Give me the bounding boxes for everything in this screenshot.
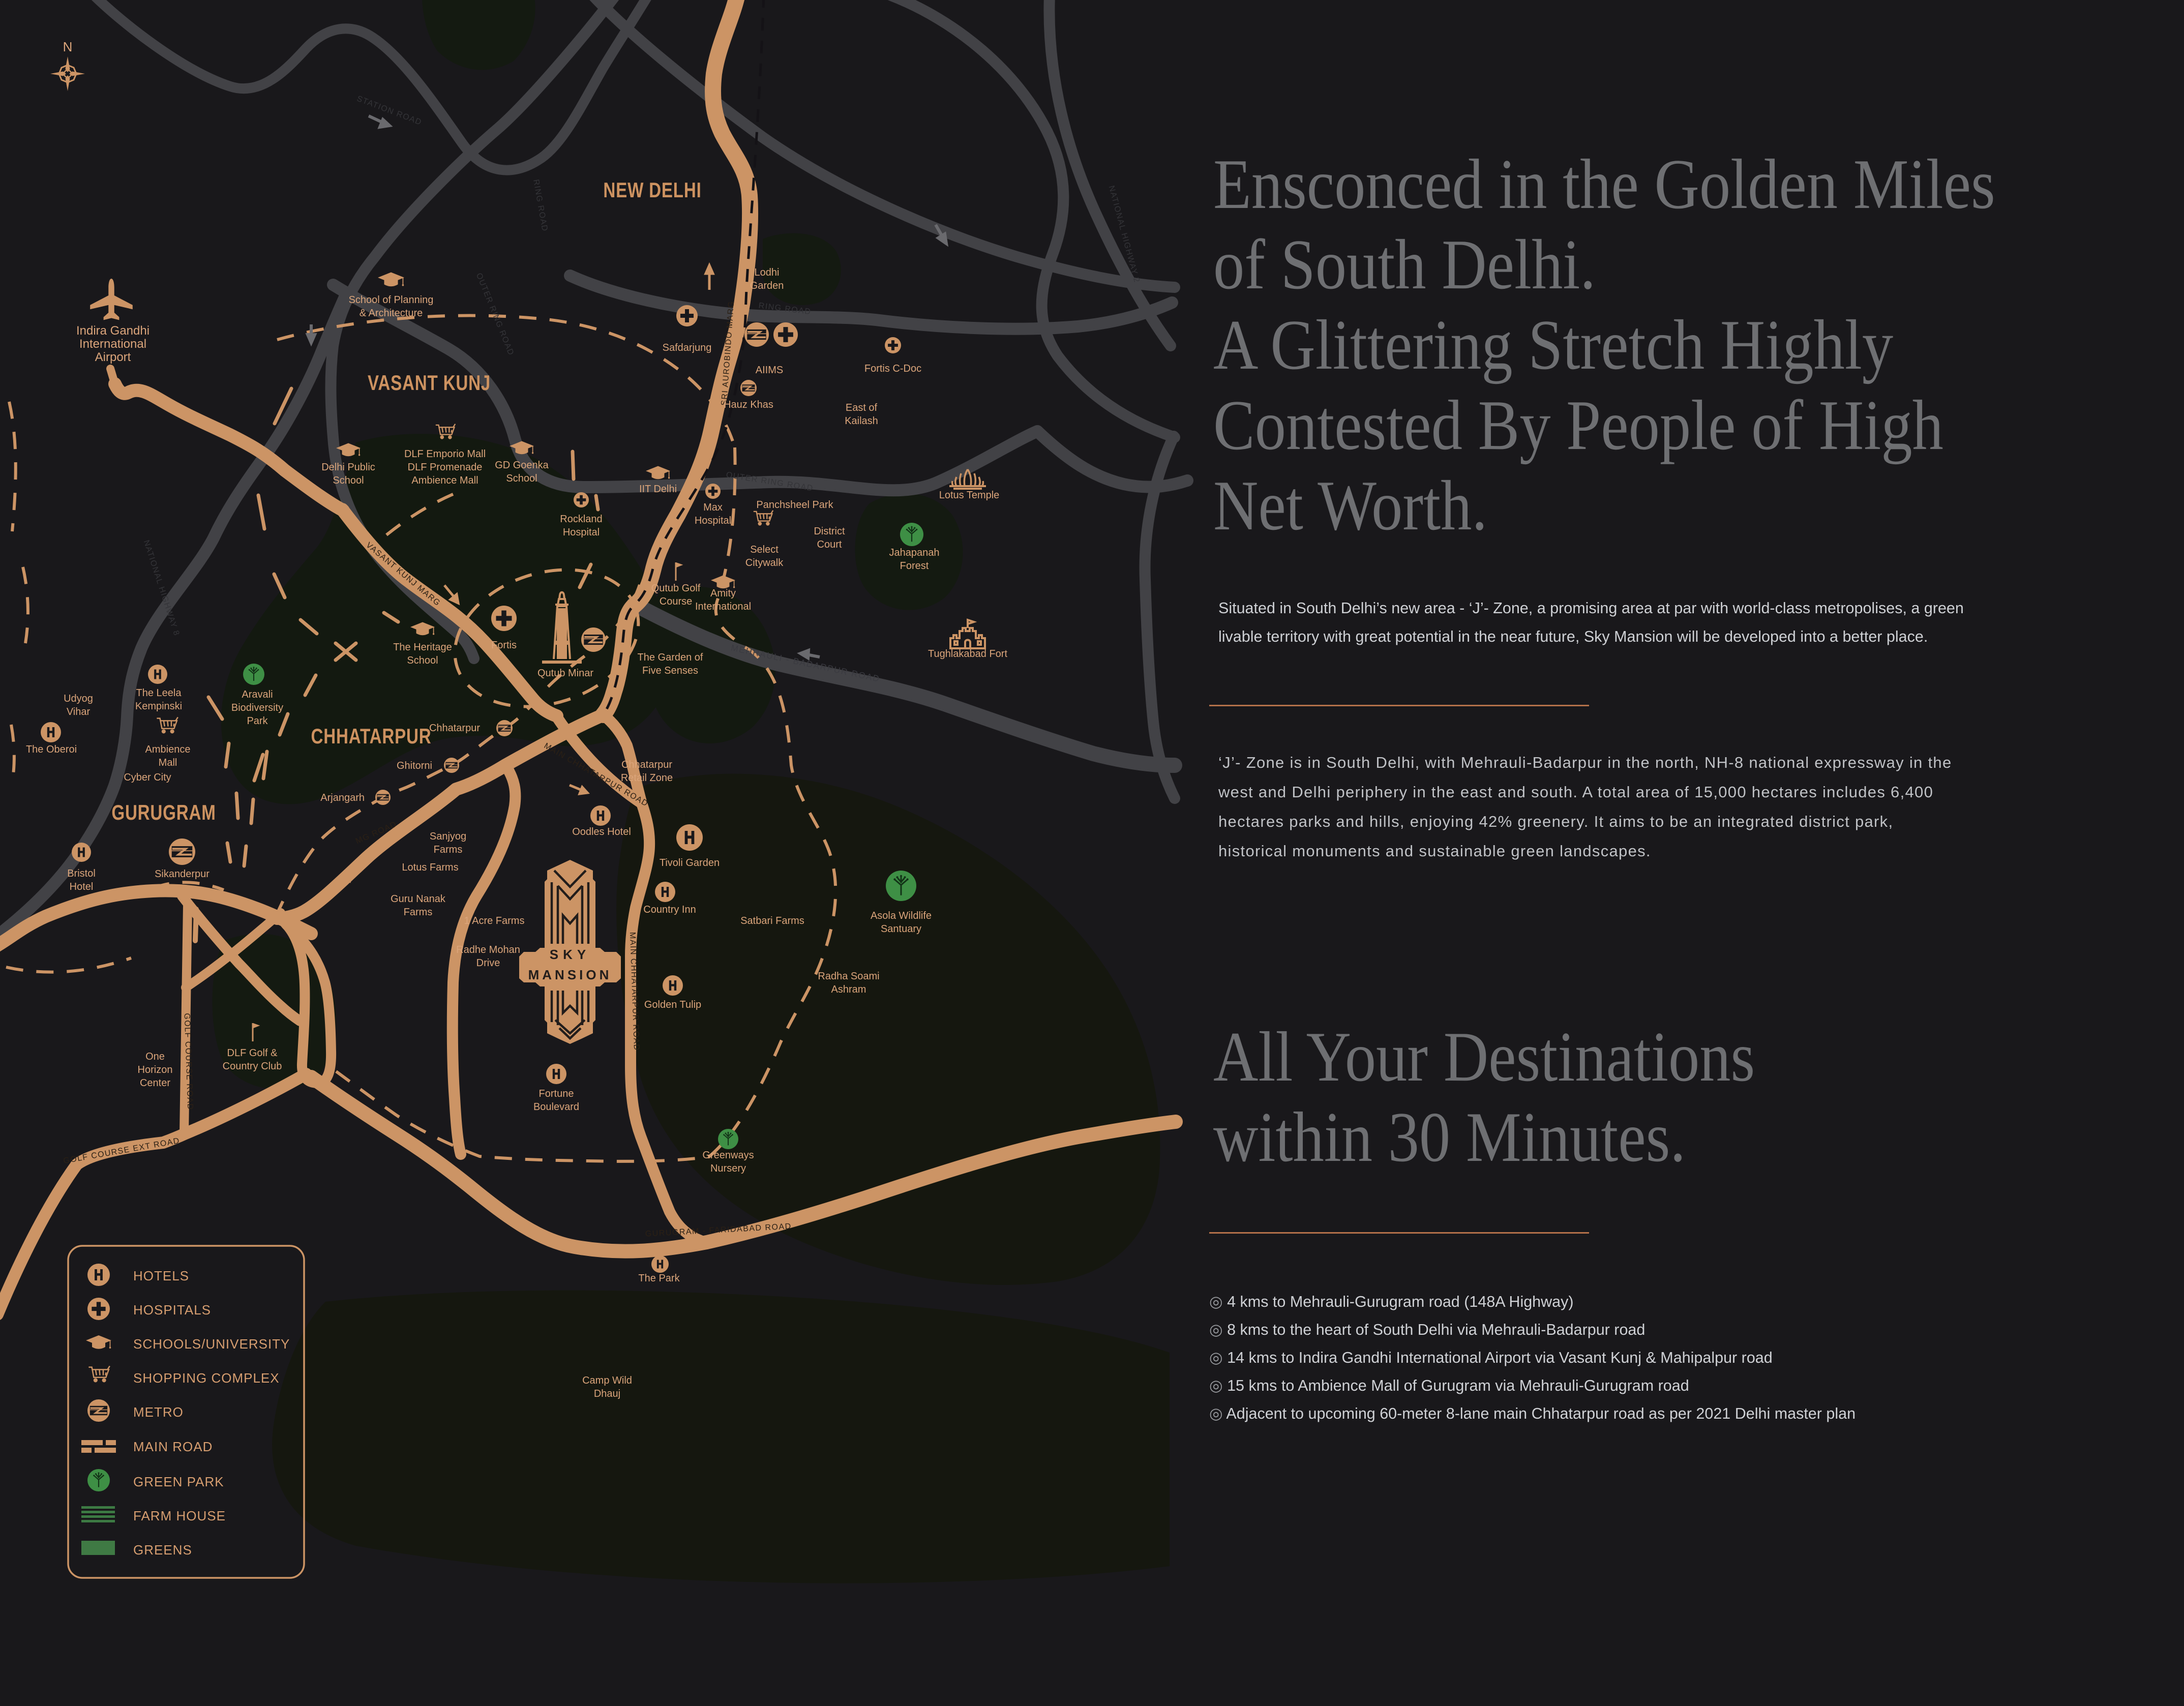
- svg-text:Camp Wild: Camp Wild: [582, 1375, 632, 1386]
- svg-text:Kempinski: Kempinski: [135, 701, 182, 712]
- svg-text:GREEN PARK: GREEN PARK: [133, 1474, 224, 1489]
- svg-text:Ambience: Ambience: [145, 744, 191, 755]
- svg-text:FARM HOUSE: FARM HOUSE: [133, 1508, 226, 1523]
- svg-text:Bristol: Bristol: [67, 868, 96, 879]
- svg-text:Nursery: Nursery: [710, 1163, 746, 1174]
- svg-text:CHHATARPUR: CHHATARPUR: [311, 725, 432, 749]
- svg-text:International: International: [79, 337, 146, 351]
- svg-text:Tivoli Garden: Tivoli Garden: [660, 857, 720, 869]
- svg-text:AIIMS: AIIMS: [756, 365, 783, 376]
- svg-text:Retail Zone: Retail Zone: [621, 772, 673, 784]
- svg-text:Golden Tulip: Golden Tulip: [644, 999, 701, 1010]
- svg-text:Arjangarh: Arjangarh: [320, 792, 365, 803]
- svg-text:Court: Court: [817, 539, 842, 550]
- svg-text:Citywalk: Citywalk: [745, 557, 784, 568]
- svg-text:School: School: [506, 473, 537, 484]
- svg-text:One: One: [145, 1051, 165, 1062]
- svg-text:District: District: [814, 526, 845, 537]
- svg-text:Horizon: Horizon: [138, 1064, 173, 1075]
- svg-text:& Architecture: & Architecture: [360, 308, 423, 319]
- svg-text:Biodiversity: Biodiversity: [231, 702, 283, 713]
- svg-text:Chhatarpur: Chhatarpur: [429, 723, 480, 734]
- svg-text:The Park: The Park: [638, 1273, 680, 1284]
- svg-text:Five Senses: Five Senses: [642, 665, 698, 676]
- svg-text:Cyber City: Cyber City: [124, 772, 171, 783]
- svg-text:Ashram: Ashram: [831, 984, 866, 995]
- svg-text:GURUGRAM: GURUGRAM: [111, 801, 216, 825]
- svg-text:VASANT KUNJ: VASANT KUNJ: [368, 371, 491, 395]
- svg-text:Park: Park: [247, 715, 268, 727]
- svg-text:Delhi Public: Delhi Public: [321, 462, 375, 473]
- svg-text:GREENS: GREENS: [133, 1542, 192, 1558]
- svg-text:Greenways: Greenways: [702, 1150, 754, 1161]
- svg-text:SCHOOLS/UNIVERSITY: SCHOOLS/UNIVERSITY: [133, 1336, 290, 1352]
- svg-text:Vihar: Vihar: [67, 706, 91, 717]
- svg-text:Oodles Hotel: Oodles Hotel: [572, 826, 631, 837]
- svg-text:N: N: [63, 39, 73, 54]
- svg-text:Qutub Golf: Qutub Golf: [651, 583, 701, 594]
- svg-text:DLF Promenade: DLF Promenade: [408, 462, 483, 473]
- svg-text:The Oberoi: The Oberoi: [26, 744, 77, 755]
- svg-text:Jahapanah: Jahapanah: [889, 547, 940, 558]
- svg-text:Safdarjung: Safdarjung: [663, 342, 712, 353]
- svg-text:Garden: Garden: [750, 280, 784, 291]
- svg-text:Qutub Minar: Qutub Minar: [537, 668, 593, 679]
- svg-text:Country Club: Country Club: [223, 1061, 282, 1072]
- svg-text:Tughlakabad Fort: Tughlakabad Fort: [928, 648, 1007, 660]
- svg-text:Aravali: Aravali: [242, 689, 273, 700]
- svg-text:DLF Golf &: DLF Golf &: [227, 1047, 278, 1059]
- svg-text:Select: Select: [750, 544, 779, 555]
- svg-text:Boulevard: Boulevard: [533, 1101, 579, 1113]
- svg-text:MAIN ROAD: MAIN ROAD: [133, 1439, 213, 1454]
- svg-text:Ambience Mall: Ambience Mall: [411, 475, 478, 486]
- svg-text:Santuary: Santuary: [881, 923, 921, 935]
- svg-text:School: School: [333, 475, 364, 486]
- svg-text:HOSPITALS: HOSPITALS: [133, 1302, 211, 1318]
- svg-text:Kailash: Kailash: [845, 415, 878, 427]
- svg-text:Hauz Khas: Hauz Khas: [724, 399, 773, 410]
- svg-text:Udyog: Udyog: [64, 693, 93, 704]
- svg-text:SKY: SKY: [550, 947, 590, 962]
- svg-text:Sikanderpur: Sikanderpur: [155, 869, 210, 880]
- svg-text:Center: Center: [140, 1078, 170, 1089]
- svg-text:DLF Emporio Mall: DLF Emporio Mall: [404, 448, 486, 460]
- svg-text:IIT Delhi: IIT Delhi: [639, 484, 677, 495]
- svg-text:Country Inn: Country Inn: [643, 904, 696, 915]
- svg-text:Hospital: Hospital: [695, 515, 731, 526]
- svg-text:Sanjyog: Sanjyog: [430, 831, 466, 842]
- svg-text:Asola Wildlife: Asola Wildlife: [871, 910, 932, 921]
- svg-text:Ghitorni: Ghitorni: [397, 760, 432, 771]
- svg-text:Satbari Farms: Satbari Farms: [740, 915, 804, 926]
- svg-text:School: School: [407, 655, 438, 666]
- svg-text:Dhauj: Dhauj: [594, 1388, 620, 1399]
- svg-text:Fortune: Fortune: [539, 1088, 574, 1099]
- svg-text:School of Planning: School of Planning: [349, 294, 434, 306]
- svg-text:International: International: [695, 601, 751, 612]
- svg-text:Rockland: Rockland: [560, 514, 602, 525]
- svg-text:Hospital: Hospital: [563, 527, 600, 538]
- svg-text:GD Goenka: GD Goenka: [495, 460, 549, 471]
- svg-text:Lodhi: Lodhi: [755, 267, 780, 278]
- svg-text:Chhatarpur: Chhatarpur: [621, 759, 672, 770]
- svg-text:Max: Max: [703, 502, 723, 513]
- svg-text:Lotus Farms: Lotus Farms: [402, 862, 458, 873]
- svg-text:Fortis C-Doc: Fortis C-Doc: [864, 363, 921, 374]
- svg-text:Panchsheel Park: Panchsheel Park: [756, 499, 833, 511]
- svg-text:The Heritage: The Heritage: [393, 642, 452, 653]
- svg-text:Drive: Drive: [476, 957, 500, 969]
- svg-text:Farms: Farms: [404, 907, 433, 918]
- svg-text:Guru Nanak: Guru Nanak: [391, 893, 446, 905]
- svg-text:Amity: Amity: [710, 588, 736, 599]
- svg-text:Fortis: Fortis: [491, 640, 517, 651]
- svg-text:Mall: Mall: [159, 757, 177, 768]
- svg-text:Indira Gandhi: Indira Gandhi: [76, 324, 149, 338]
- svg-text:HOTELS: HOTELS: [133, 1268, 189, 1283]
- svg-text:Lotus Temple: Lotus Temple: [939, 490, 1000, 501]
- svg-text:SHOPPING COMPLEX: SHOPPING COMPLEX: [133, 1370, 280, 1386]
- svg-text:MANSION: MANSION: [528, 967, 612, 982]
- svg-text:Hotel: Hotel: [70, 881, 94, 892]
- svg-text:Radha Soami: Radha Soami: [818, 971, 879, 982]
- svg-text:The Garden of: The Garden of: [638, 652, 703, 663]
- svg-text:The Leela: The Leela: [136, 687, 182, 699]
- svg-text:Course: Course: [660, 596, 692, 607]
- svg-text:NEW DELHI: NEW DELHI: [603, 178, 701, 202]
- svg-text:Farms: Farms: [434, 844, 463, 855]
- svg-text:Forest: Forest: [900, 560, 929, 572]
- svg-text:Radhe Mohan: Radhe Mohan: [456, 944, 520, 955]
- svg-text:1 Acre Farms: 1 Acre Farms: [464, 915, 525, 926]
- svg-text:Airport: Airport: [95, 350, 131, 364]
- svg-text:METRO: METRO: [133, 1404, 184, 1420]
- svg-text:East of: East of: [846, 402, 878, 413]
